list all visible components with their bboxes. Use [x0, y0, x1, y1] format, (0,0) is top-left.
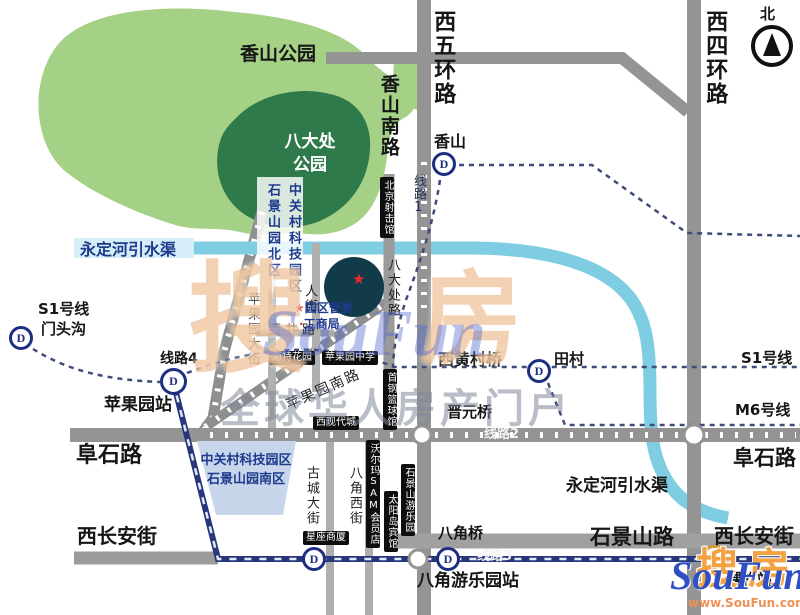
pingguoyuan-street-label: 苹果园大街	[244, 292, 259, 367]
m6-line-label: M6号线	[735, 402, 790, 419]
s1-line-label-east: S1号线	[741, 350, 792, 367]
s1-line-label-west: S1号线	[38, 301, 89, 318]
compass-icon	[751, 25, 793, 67]
bajiao-west-street-label: 八角西街	[346, 466, 361, 526]
xiangshan-park-label: 香山公园	[240, 44, 316, 66]
south-zone-title: 中关村科技园区石景山园南区	[200, 452, 292, 490]
changan-west-label-west: 西长安街	[77, 525, 157, 548]
badachu-road-label: 八大处路	[384, 258, 399, 318]
jinyuan-bridge-label: 晋元桥	[447, 404, 492, 421]
map-graphics	[0, 0, 800, 615]
xiangshan-station-icon: D	[432, 152, 456, 176]
gucheng-station-icon: D	[302, 547, 326, 571]
committee-text: 园区管委	[305, 301, 353, 315]
committee-label: ★园区管委	[294, 302, 353, 316]
shooting-range-pill: 北京射击馆	[380, 177, 394, 238]
line2-label: 线路2	[484, 428, 519, 443]
bureau-text: 工商局	[304, 317, 340, 331]
line4-label: 线路4	[160, 351, 198, 367]
logo-url: www.SouFun.com	[688, 596, 800, 610]
south-zone-line1: 中关村科技园区	[200, 453, 291, 468]
north-label: 北	[760, 6, 775, 23]
compass-needle-icon	[763, 33, 781, 56]
committee-star-icon: ★	[294, 301, 305, 315]
haite-garden-pill: 海特花园	[269, 351, 315, 365]
line3-label: 线路3	[477, 550, 512, 565]
shijingshan-road-label: 石景山路	[590, 525, 674, 549]
shougang-gym-pill: 首钢篮球馆	[383, 369, 397, 430]
bajiao-bridge-label: 八角桥	[438, 525, 483, 542]
tiancun-station-icon: D	[527, 359, 551, 383]
project-star-icon: ★	[352, 271, 365, 288]
xiangshan-station-label: 香山	[434, 133, 466, 151]
logo-soufun: SouFun	[670, 552, 800, 599]
north-zone-title-col2: 石景山园北区	[264, 183, 279, 279]
mentougou-station-icon: D	[9, 326, 33, 350]
canal-label-south: 永定河引水渠	[566, 477, 668, 497]
xiwuhuan-road-label: 西五环路	[430, 10, 455, 106]
sun-island-hotel-pill: 太阳岛宾馆	[384, 491, 398, 552]
fushi-road-label-east: 阜石路	[733, 446, 796, 470]
mentougou-label: 门头沟	[41, 321, 86, 338]
canal-label-north: 永定河引水渠	[80, 241, 176, 259]
pingguoyuan-station-label: 苹果园站	[104, 396, 172, 416]
xixiandai-city-pill: 西现代城	[313, 416, 359, 430]
fushi-xisihuan-ring	[684, 425, 704, 445]
badachu-park-label: 八大处 公园	[268, 131, 352, 177]
south-zone-line2: 石景山园南区	[207, 472, 285, 487]
north-zone-title-col1: 中关村科技园区	[285, 183, 300, 295]
xiangshan-east-dash	[459, 165, 800, 236]
bajiao-bridge-ring	[409, 550, 427, 568]
bajiao-amusement-station-icon: D	[436, 547, 460, 571]
xingzuo-mall-pill: 星座商厦	[303, 531, 349, 545]
s1-line-west-dash	[33, 349, 160, 382]
xisihuan-road-label: 西四环路	[702, 10, 727, 106]
amusement-park-pill: 石景山游乐园	[401, 464, 415, 536]
fushi-xiwuhuan-ring	[413, 426, 431, 444]
line1-label: 线路1	[410, 174, 425, 215]
walmart-pill: 沃尔玛SAM会员店	[366, 440, 380, 548]
gucheng-street-label: 古城大街	[303, 466, 318, 526]
map-canvas: 北 香山公园 八大处 公园 西五环路 西四环路 香山南路 八大处路 苹果园大街 …	[0, 0, 800, 615]
tiancun-station-label: 田村	[554, 351, 584, 368]
bajiao-amusement-station-label: 八角游乐园站	[417, 572, 519, 592]
bureau-label: ·工商局	[299, 318, 340, 332]
pingguoyuan-school-pill: 苹果园中学	[322, 351, 378, 365]
pingguoyuan-station-icon: D	[160, 368, 187, 395]
xiangshan-south-road-label: 香山南路	[377, 74, 399, 158]
fushi-road-label-west: 阜石路	[76, 443, 142, 468]
xihuangcun-bridge-label: 西黄村桥	[438, 351, 502, 369]
